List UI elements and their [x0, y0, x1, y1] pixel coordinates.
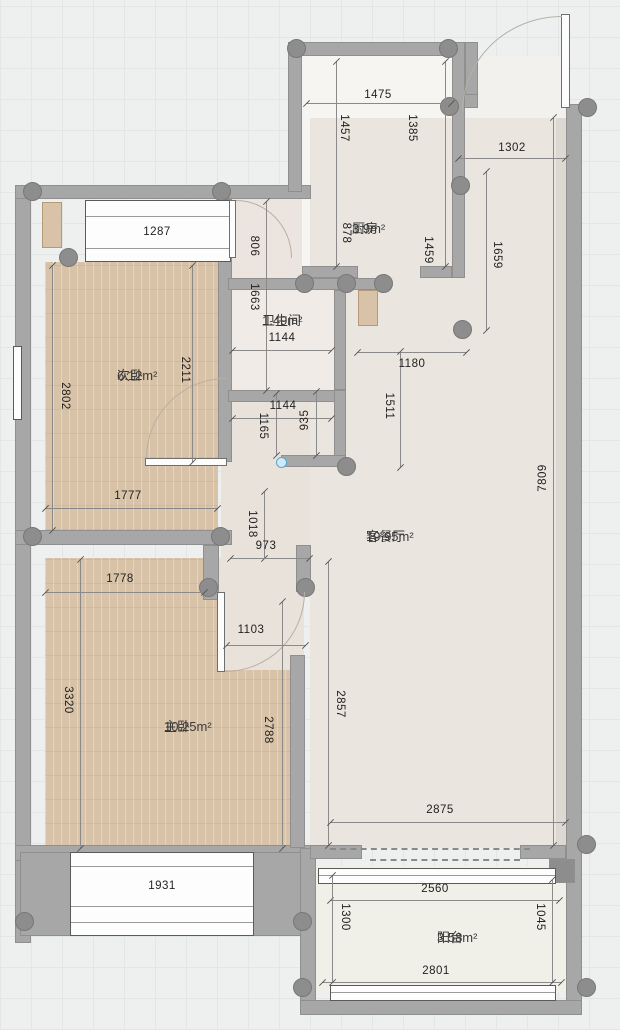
dimension-line	[80, 560, 81, 848]
dim-label-2560: 2560	[421, 883, 449, 895]
dim-label-2802: 2802	[59, 382, 71, 410]
dim-label-1045: 1045	[534, 903, 546, 931]
floor-plan: 1475 1457 1385 1302 878 1459 1659 1287 8…	[0, 0, 620, 1030]
dimension-line	[282, 602, 283, 848]
balcony-sliding-door	[370, 859, 520, 861]
dim-label-2788: 2788	[262, 716, 274, 744]
hall-door-leaf	[229, 200, 236, 258]
dimension-line	[232, 350, 332, 351]
master-bedroom-door-leaf	[217, 592, 225, 672]
column	[212, 182, 231, 201]
column	[295, 274, 314, 293]
dim-label-2801: 2801	[422, 965, 450, 977]
balcony-top-window	[318, 868, 556, 884]
dimension-line	[486, 172, 487, 330]
dim-label-878: 878	[340, 223, 352, 244]
dim-label-3320: 3320	[62, 686, 74, 714]
room-area: 3.58m²	[437, 929, 477, 947]
wall	[420, 266, 452, 278]
column	[440, 97, 459, 116]
dim-label-1663: 1663	[248, 283, 260, 311]
dimension-line	[330, 900, 560, 901]
balcony-bottom-railing	[330, 985, 556, 1001]
window-line	[331, 992, 555, 993]
right-wall-inner-strip	[556, 118, 566, 845]
dimension-line	[306, 103, 452, 104]
dimension-line	[230, 558, 310, 559]
column	[337, 274, 356, 293]
balcony-sliding-door	[330, 848, 530, 850]
dimension-line	[316, 392, 317, 455]
dimension-line	[45, 592, 205, 593]
dim-label-1385: 1385	[406, 114, 418, 142]
window-left-wall	[13, 346, 22, 420]
dim-label-1777: 1777	[114, 490, 142, 502]
dimension-line	[52, 266, 53, 530]
window-line	[86, 248, 230, 249]
dim-label-1475: 1475	[364, 89, 392, 101]
column	[453, 320, 472, 339]
dim-label-1459: 1459	[422, 236, 434, 264]
dim-label-806: 806	[248, 236, 260, 257]
entry-door-arc	[462, 16, 562, 112]
column	[451, 176, 470, 195]
dim-label-1165: 1165	[257, 413, 269, 440]
dimension-line	[45, 508, 218, 509]
dimension-line	[330, 822, 566, 823]
bay-window-master	[70, 852, 254, 936]
dimension-line	[445, 62, 446, 266]
column	[439, 39, 458, 58]
dimension-line	[552, 880, 553, 982]
column	[287, 39, 306, 58]
wall	[15, 185, 311, 199]
dimension-line	[266, 202, 267, 390]
dimension-line	[553, 118, 554, 845]
dim-label-1144-bottom: 1144	[270, 400, 297, 412]
column	[577, 835, 596, 854]
window-line	[319, 875, 555, 876]
dim-label-973: 973	[256, 540, 277, 552]
column	[293, 978, 312, 997]
room-area: 10.25m²	[164, 718, 212, 736]
column	[577, 978, 596, 997]
window-line	[86, 216, 230, 217]
dim-label-1018: 1018	[246, 510, 258, 538]
dim-label-1144-top: 1144	[269, 332, 296, 344]
dim-label-1287: 1287	[143, 226, 171, 238]
dimension-line	[332, 876, 333, 982]
dim-label-2875: 2875	[426, 804, 454, 816]
dim-label-1931: 1931	[148, 880, 176, 892]
dim-label-935: 935	[299, 410, 311, 431]
dim-label-1302: 1302	[498, 142, 526, 154]
room-area: 19.95m²	[366, 528, 414, 546]
dim-label-1457: 1457	[338, 114, 350, 142]
wall	[300, 1000, 582, 1015]
door-stop-dot	[276, 457, 287, 468]
dimension-line	[192, 266, 193, 462]
second-bedroom-door-leaf	[145, 458, 227, 466]
wall	[290, 655, 305, 848]
dim-label-1300: 1300	[339, 903, 351, 931]
wall	[15, 185, 31, 943]
column	[578, 98, 597, 117]
column	[15, 912, 34, 931]
room-area: 6.12m²	[117, 367, 157, 385]
dim-label-1659: 1659	[491, 241, 503, 269]
dimension-line	[226, 645, 306, 646]
dim-label-2857: 2857	[334, 690, 346, 718]
room-area: 3.9m²	[352, 220, 385, 238]
window-line	[71, 922, 253, 923]
column	[337, 457, 356, 476]
column	[211, 527, 230, 546]
dimension-line	[458, 158, 566, 159]
window-line	[71, 866, 253, 867]
dimension-line	[322, 982, 562, 983]
cabinet-box	[358, 290, 378, 326]
dim-label-1103: 1103	[238, 624, 265, 636]
wall	[334, 290, 346, 390]
wall	[452, 42, 465, 278]
dim-label-7809: 7809	[537, 464, 549, 492]
dimension-line	[232, 418, 332, 419]
dimension-line	[357, 352, 467, 353]
entry-door-leaf	[561, 14, 570, 108]
column	[59, 248, 78, 267]
window-line	[71, 906, 253, 907]
dimension-line	[336, 62, 337, 266]
column	[23, 182, 42, 201]
dim-label-1511: 1511	[383, 393, 395, 420]
closet-box	[42, 202, 62, 248]
wall	[15, 530, 221, 545]
dim-label-1778: 1778	[106, 573, 134, 585]
column	[293, 912, 312, 931]
dimension-line	[328, 562, 329, 845]
room-area: 1.49m²	[262, 312, 302, 330]
dim-label-2211: 2211	[179, 357, 191, 384]
dim-label-1180: 1180	[399, 358, 426, 370]
wall	[288, 42, 302, 192]
column	[23, 527, 42, 546]
